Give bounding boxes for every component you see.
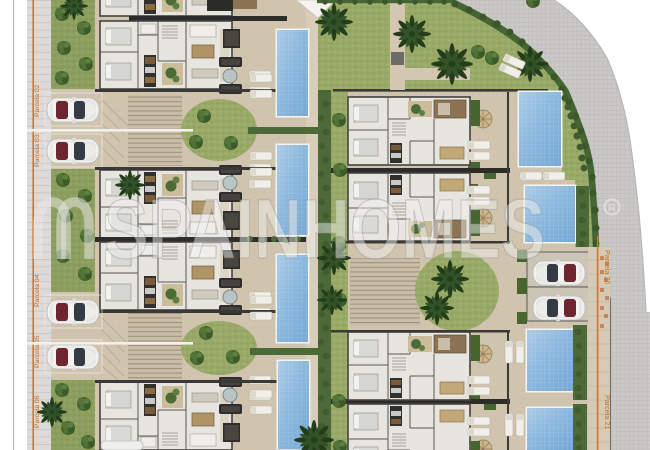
svg-text:SPAINHOMES: SPAINHOMES	[104, 183, 545, 277]
svg-text:Parcela 20: Parcela 20	[603, 250, 612, 284]
svg-text:Parcela 03: Parcela 03	[34, 134, 41, 167]
svg-text:R: R	[608, 202, 616, 214]
svg-text:Parcela 04: Parcela 04	[34, 274, 41, 307]
svg-text:Parcela 02: Parcela 02	[34, 84, 41, 117]
svg-text:Parcela 05: Parcela 05	[34, 335, 41, 368]
svg-text:Parcela 21: Parcela 21	[603, 395, 612, 429]
